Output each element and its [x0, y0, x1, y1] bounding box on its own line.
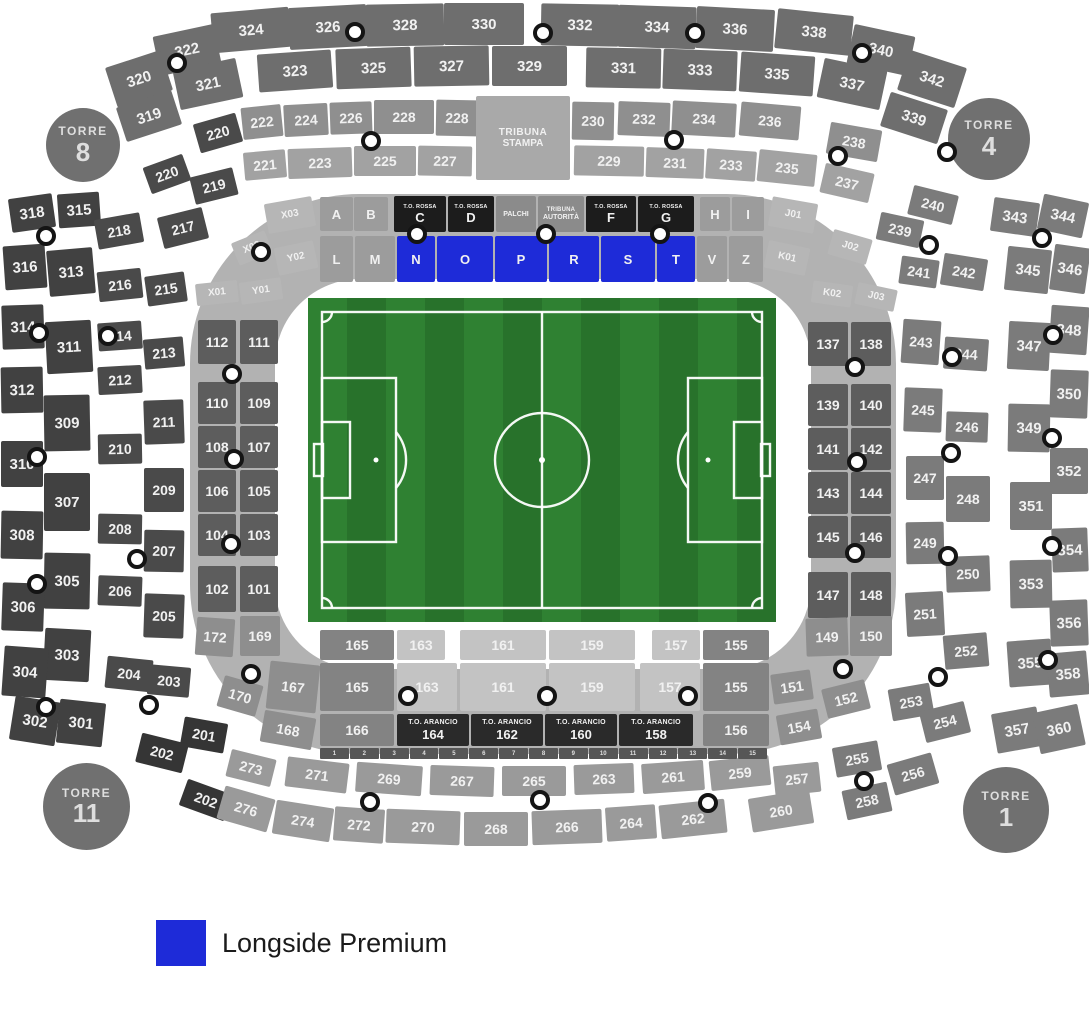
section-323[interactable]: 323	[257, 49, 333, 92]
section-260[interactable]: 260	[748, 789, 815, 832]
section-159a[interactable]: 159	[549, 630, 635, 660]
section-243[interactable]: 243	[901, 319, 942, 366]
section-label: Z	[742, 253, 750, 266]
section-label: 230	[581, 114, 605, 128]
section-label: 351	[1018, 499, 1043, 514]
gate-marker	[530, 790, 550, 810]
section-165a[interactable]: 165	[320, 630, 394, 660]
section-110[interactable]: 110	[198, 382, 236, 424]
gate-marker	[222, 364, 242, 384]
gate-marker	[938, 546, 958, 566]
section-label: Y01	[251, 285, 270, 297]
section-label: 109	[247, 396, 270, 410]
gate-marker	[1042, 428, 1062, 448]
section-233[interactable]: 233	[705, 148, 757, 181]
section-231[interactable]: 231	[645, 147, 704, 179]
section-label: L	[333, 253, 341, 266]
section-350[interactable]: 350	[1049, 369, 1089, 418]
section-label: 157	[664, 638, 687, 652]
section-103[interactable]: 103	[240, 514, 278, 556]
section-335[interactable]: 335	[739, 51, 816, 96]
section-165b[interactable]: 165	[320, 663, 394, 711]
section-label: 237	[834, 174, 860, 193]
gate-marker	[937, 142, 957, 162]
section-label: 272	[347, 817, 371, 833]
section-154[interactable]: 154	[776, 709, 823, 746]
section-140[interactable]: 140	[851, 384, 891, 426]
section-label: 145	[816, 530, 839, 544]
section-109[interactable]: 109	[240, 382, 278, 424]
section-label: 154	[786, 718, 811, 736]
section-label: 241	[906, 263, 931, 280]
seat-row-12[interactable]: 12	[649, 748, 678, 759]
section-label: 169	[248, 629, 271, 643]
section-220a[interactable]: 220	[193, 113, 244, 154]
gate-marker	[251, 242, 271, 262]
section-Z[interactable]: Z	[729, 236, 763, 282]
gate-marker	[678, 686, 698, 706]
section-169[interactable]: 169	[240, 616, 280, 656]
section-156[interactable]: 156	[703, 714, 769, 746]
section-H[interactable]: H	[700, 197, 730, 231]
section-label: 305	[54, 573, 79, 588]
section-246[interactable]: 246	[945, 411, 988, 442]
section-label: 143	[816, 486, 839, 500]
section-label: 140	[859, 398, 882, 412]
section-251[interactable]: 251	[905, 591, 945, 637]
section-264[interactable]: 264	[605, 804, 657, 841]
seat-row-2[interactable]: 2	[350, 748, 379, 759]
section-label: 217	[170, 218, 196, 237]
section-144[interactable]: 144	[851, 472, 891, 514]
section-label: 345	[1015, 261, 1041, 279]
section-label: 325	[361, 60, 387, 76]
section-label: 335	[764, 66, 790, 83]
section-212[interactable]: 212	[97, 365, 142, 395]
section-A[interactable]: A	[320, 197, 353, 231]
section-label: 331	[611, 60, 636, 75]
section-161b[interactable]: 161	[460, 663, 546, 711]
section-230[interactable]: 230	[572, 102, 615, 141]
section-218[interactable]: 218	[94, 212, 145, 250]
section-329[interactable]: 329	[492, 46, 567, 86]
section-label: 138	[859, 337, 882, 351]
section-161a[interactable]: 161	[460, 630, 546, 660]
section-245[interactable]: 245	[903, 387, 943, 432]
section-label: 212	[108, 372, 132, 387]
gate-marker	[919, 235, 939, 255]
section-232[interactable]: 232	[617, 101, 670, 137]
section-label: N	[411, 253, 420, 266]
section-150[interactable]: 150	[850, 616, 892, 656]
section-PALCHI[interactable]: PALCHI	[496, 196, 536, 232]
section-351[interactable]: 351	[1010, 482, 1052, 530]
section-239[interactable]: 239	[876, 212, 925, 249]
section-223[interactable]: 223	[287, 147, 352, 179]
section-label: 252	[954, 643, 978, 659]
section-label: 350	[1056, 386, 1082, 402]
section-311[interactable]: 311	[45, 320, 94, 374]
gate-marker	[361, 131, 381, 151]
section-label: 258	[854, 792, 880, 811]
section-149[interactable]: 149	[805, 617, 848, 656]
section-label: 103	[247, 528, 270, 542]
section-V[interactable]: V	[697, 236, 727, 282]
section-227[interactable]: 227	[418, 146, 473, 177]
section-220b[interactable]: 220	[142, 154, 191, 195]
section-268[interactable]: 268	[464, 812, 528, 846]
section-272[interactable]: 272	[333, 806, 385, 843]
section-107[interactable]: 107	[240, 426, 278, 468]
tower-number: 8	[76, 139, 90, 165]
section-label: T	[672, 253, 680, 266]
gate-marker	[139, 695, 159, 715]
section-101[interactable]: 101	[240, 566, 278, 612]
section-label: 111	[248, 335, 270, 349]
section-155a[interactable]: 155	[703, 630, 769, 660]
section-166[interactable]: 166	[320, 714, 394, 746]
section-D[interactable]: T.O. ROSSAD	[448, 196, 494, 232]
section-label: 228	[445, 111, 469, 125]
section-210[interactable]: 210	[98, 434, 143, 465]
section-338[interactable]: 338	[774, 8, 854, 56]
section-162[interactable]: T.O. ARANCIO162	[471, 714, 543, 746]
section-label: 268	[484, 822, 507, 836]
section-label: 206	[108, 584, 132, 599]
section-215[interactable]: 215	[144, 271, 188, 306]
section-label: 229	[597, 154, 621, 168]
section-label: 227	[433, 154, 457, 168]
seat-row-10[interactable]: 10	[589, 748, 618, 759]
section-label: 112	[206, 335, 229, 349]
section-label: 326	[315, 19, 341, 35]
section-228b[interactable]: 228	[436, 100, 479, 137]
section-304[interactable]: 304	[1, 646, 48, 699]
seat-row-15[interactable]: 15	[738, 748, 767, 759]
section-360[interactable]: 360	[1032, 704, 1086, 755]
section-label: 156	[724, 723, 747, 737]
section-X01[interactable]: X01	[195, 280, 239, 306]
section-label: 215	[153, 280, 178, 297]
section-L[interactable]: L	[320, 236, 353, 282]
section-label: K02	[822, 288, 842, 300]
section-330[interactable]: 330	[444, 3, 524, 45]
section-F[interactable]: T.O. ROSSAF	[586, 196, 636, 232]
section-label: 161	[491, 638, 514, 652]
section-332[interactable]: 332	[541, 3, 620, 46]
gate-marker	[241, 664, 261, 684]
section-label: 357	[1003, 720, 1030, 739]
section-label: 307	[54, 495, 79, 510]
section-label: 209	[152, 483, 175, 497]
section-236[interactable]: 236	[739, 101, 802, 140]
section-I[interactable]: I	[732, 197, 764, 231]
section-label: 232	[632, 112, 656, 127]
section-261[interactable]: 261	[641, 760, 705, 794]
section-343[interactable]: 343	[990, 197, 1040, 237]
section-266[interactable]: 266	[531, 809, 602, 845]
section-267[interactable]: 267	[429, 765, 494, 797]
gate-marker	[845, 543, 865, 563]
section-301[interactable]: 301	[56, 699, 106, 748]
section-145[interactable]: 145	[808, 516, 848, 558]
section-353[interactable]: 353	[1010, 560, 1053, 609]
section-219[interactable]: 219	[189, 167, 238, 205]
section-324[interactable]: 324	[210, 7, 291, 54]
section-label: 269	[377, 771, 401, 787]
section-259[interactable]: 259	[709, 755, 772, 791]
section-label: 218	[106, 222, 131, 240]
section-tribuna-stampa[interactable]: TRIBUNASTAMPA	[476, 96, 570, 180]
section-label: 316	[12, 259, 38, 276]
section-label: 267	[450, 774, 474, 789]
gate-marker	[167, 53, 187, 73]
section-label: 163	[415, 680, 438, 694]
section-label: 328	[392, 17, 417, 32]
section-352[interactable]: 352	[1050, 448, 1088, 494]
section-label: 101	[247, 582, 270, 596]
section-247[interactable]: 247	[906, 456, 944, 500]
section-252[interactable]: 252	[943, 632, 990, 670]
section-325[interactable]: 325	[335, 47, 411, 90]
section-label: 259	[728, 765, 753, 781]
section-label: D	[466, 211, 475, 224]
section-label: 323	[282, 63, 308, 80]
section-P[interactable]: P	[495, 236, 547, 282]
section-137[interactable]: 137	[808, 322, 848, 366]
section-label: 220	[154, 163, 181, 184]
section-213[interactable]: 213	[143, 336, 185, 369]
section-label: 304	[12, 664, 38, 681]
section-label: 356	[1056, 615, 1082, 631]
gate-marker	[941, 443, 961, 463]
section-106[interactable]: 106	[198, 470, 236, 512]
section-224[interactable]: 224	[283, 103, 329, 137]
seat-row-13[interactable]: 13	[678, 748, 707, 759]
section-label: 245	[911, 403, 935, 418]
pitch-svg	[308, 298, 776, 622]
section-307[interactable]: 307	[44, 473, 90, 531]
section-label: 210	[108, 442, 132, 456]
section-label: J03	[867, 290, 885, 303]
section-208[interactable]: 208	[98, 514, 143, 545]
seat-row-1[interactable]: 1	[320, 748, 349, 759]
section-229[interactable]: 229	[574, 145, 645, 176]
section-147[interactable]: 147	[808, 572, 848, 618]
seat-row-9[interactable]: 9	[559, 748, 588, 759]
section-141[interactable]: 141	[808, 428, 848, 470]
gate-marker	[27, 447, 47, 467]
seat-row-11[interactable]: 11	[619, 748, 648, 759]
tower-4: TORRE4	[948, 98, 1030, 180]
section-label: 313	[58, 263, 84, 280]
section-label: 254	[932, 712, 958, 731]
section-237[interactable]: 237	[819, 163, 874, 203]
seat-row-4[interactable]: 4	[410, 748, 439, 759]
section-242[interactable]: 242	[940, 253, 988, 291]
section-206[interactable]: 206	[97, 575, 142, 607]
section-label: 309	[54, 415, 79, 430]
section-label: P	[517, 253, 526, 266]
section-172[interactable]: 172	[195, 617, 236, 658]
seat-row-7[interactable]: 7	[499, 748, 528, 759]
section-label: 249	[913, 536, 937, 550]
section-label: R	[569, 253, 578, 266]
section-164[interactable]: T.O. ARANCIO164	[397, 714, 469, 746]
section-270[interactable]: 270	[385, 809, 460, 846]
section-label: 358	[1055, 665, 1081, 682]
section-305[interactable]: 305	[44, 553, 91, 610]
section-217[interactable]: 217	[157, 207, 209, 249]
section-241[interactable]: 241	[898, 255, 940, 288]
section-309[interactable]: 309	[44, 395, 91, 452]
section-334[interactable]: 334	[617, 5, 696, 50]
section-225[interactable]: 225	[354, 146, 416, 176]
section-label: 250	[956, 567, 980, 582]
gate-marker	[1032, 228, 1052, 248]
section-333[interactable]: 333	[662, 49, 737, 92]
section-label: 211	[152, 415, 175, 430]
section-label: 266	[555, 820, 579, 835]
section-157a[interactable]: 157	[652, 630, 700, 660]
section-151[interactable]: 151	[770, 669, 814, 704]
section-label: X01	[208, 287, 227, 299]
seat-row-3[interactable]: 3	[380, 748, 409, 759]
section-label: 148	[859, 588, 882, 602]
section-228a[interactable]: 228	[374, 100, 434, 134]
tower-number: 11	[73, 800, 101, 826]
section-331[interactable]: 331	[586, 47, 662, 88]
gate-marker	[36, 697, 56, 717]
section-label: M	[370, 253, 381, 266]
section-label: 352	[1056, 464, 1081, 479]
section-label: 346	[1057, 260, 1084, 278]
gate-marker	[533, 23, 553, 43]
section-345[interactable]: 345	[1004, 246, 1052, 294]
section-160[interactable]: T.O. ARANCIO160	[545, 714, 617, 746]
seat-row-14[interactable]: 14	[708, 748, 737, 759]
section-159b[interactable]: 159	[549, 663, 635, 711]
section-102[interactable]: 102	[198, 566, 236, 612]
section-label: 312	[9, 382, 34, 397]
section-label: 220	[205, 123, 231, 143]
section-label: 213	[152, 345, 176, 361]
section-label: 105	[247, 484, 270, 498]
section-label: 235	[775, 160, 800, 176]
section-327[interactable]: 327	[414, 45, 490, 86]
section-label: 141	[816, 442, 839, 456]
section-105[interactable]: 105	[240, 470, 278, 512]
section-label: O	[460, 253, 470, 266]
section-label: 149	[815, 630, 839, 645]
section-167[interactable]: 167	[266, 661, 321, 714]
section-label: 273	[238, 758, 264, 777]
section-313[interactable]: 313	[46, 247, 96, 297]
section-205[interactable]: 205	[143, 593, 185, 638]
section-235[interactable]: 235	[756, 149, 817, 187]
section-143[interactable]: 143	[808, 472, 848, 514]
seat-row-8[interactable]: 8	[529, 748, 558, 759]
section-163a[interactable]: 163	[397, 630, 445, 660]
section-269[interactable]: 269	[355, 762, 423, 797]
section-328[interactable]: 328	[366, 3, 445, 46]
section-274[interactable]: 274	[272, 800, 335, 843]
section-336[interactable]: 336	[695, 6, 775, 52]
section-256[interactable]: 256	[886, 752, 939, 795]
section-346[interactable]: 346	[1049, 244, 1089, 295]
section-273[interactable]: 273	[225, 749, 276, 787]
section-271[interactable]: 271	[284, 756, 349, 793]
section-211[interactable]: 211	[143, 399, 185, 444]
gate-marker	[407, 224, 427, 244]
section-label: 240	[920, 195, 946, 214]
section-111[interactable]: 111	[240, 320, 278, 364]
section-203[interactable]: 203	[147, 664, 191, 698]
section-308[interactable]: 308	[1, 511, 44, 560]
section-M[interactable]: M	[355, 236, 395, 282]
section-226[interactable]: 226	[329, 101, 372, 134]
section-209[interactable]: 209	[144, 468, 184, 512]
gate-marker	[852, 43, 872, 63]
section-label: 106	[205, 484, 228, 498]
section-label: 311	[57, 339, 82, 355]
section-303[interactable]: 303	[43, 628, 92, 682]
section-139[interactable]: 139	[808, 384, 848, 426]
section-207[interactable]: 207	[144, 530, 185, 573]
section-204[interactable]: 204	[104, 656, 153, 693]
section-112[interactable]: 112	[198, 320, 236, 364]
section-356[interactable]: 356	[1049, 599, 1089, 646]
legend-swatch	[156, 920, 206, 966]
section-O[interactable]: O	[437, 236, 493, 282]
section-316[interactable]: 316	[3, 244, 48, 291]
section-label: 338	[801, 23, 827, 41]
section-R[interactable]: R	[549, 236, 599, 282]
gate-marker	[664, 130, 684, 150]
section-S[interactable]: S	[601, 236, 655, 282]
gate-marker	[98, 326, 118, 346]
section-label: 243	[909, 334, 933, 350]
section-216[interactable]: 216	[97, 268, 144, 302]
section-155b[interactable]: 155	[703, 663, 769, 711]
section-label: 319	[135, 105, 163, 127]
section-label: 261	[661, 769, 685, 785]
section-label: 167	[281, 679, 306, 695]
section-148[interactable]: 148	[851, 572, 891, 618]
section-276[interactable]: 276	[216, 785, 275, 832]
section-263[interactable]: 263	[573, 763, 634, 795]
section-158[interactable]: T.O. ARANCIO158	[619, 714, 693, 746]
section-label: C	[415, 211, 424, 224]
section-label: 334	[644, 19, 670, 35]
gate-marker	[398, 686, 418, 706]
section-label: 256	[900, 764, 926, 784]
section-248[interactable]: 248	[946, 476, 990, 522]
section-221[interactable]: 221	[243, 149, 287, 181]
section-label: 170	[227, 686, 253, 706]
section-label: 260	[768, 802, 793, 819]
section-B[interactable]: B	[354, 197, 388, 231]
tower-number: 4	[982, 133, 996, 159]
seat-row-5[interactable]: 5	[439, 748, 468, 759]
section-label: 324	[238, 21, 264, 38]
section-222[interactable]: 222	[240, 104, 283, 140]
section-label: 336	[722, 21, 748, 37]
section-label: STAMPA	[503, 139, 544, 149]
section-label: F	[607, 211, 615, 224]
seat-row-6[interactable]: 6	[469, 748, 498, 759]
section-312[interactable]: 312	[1, 367, 44, 414]
